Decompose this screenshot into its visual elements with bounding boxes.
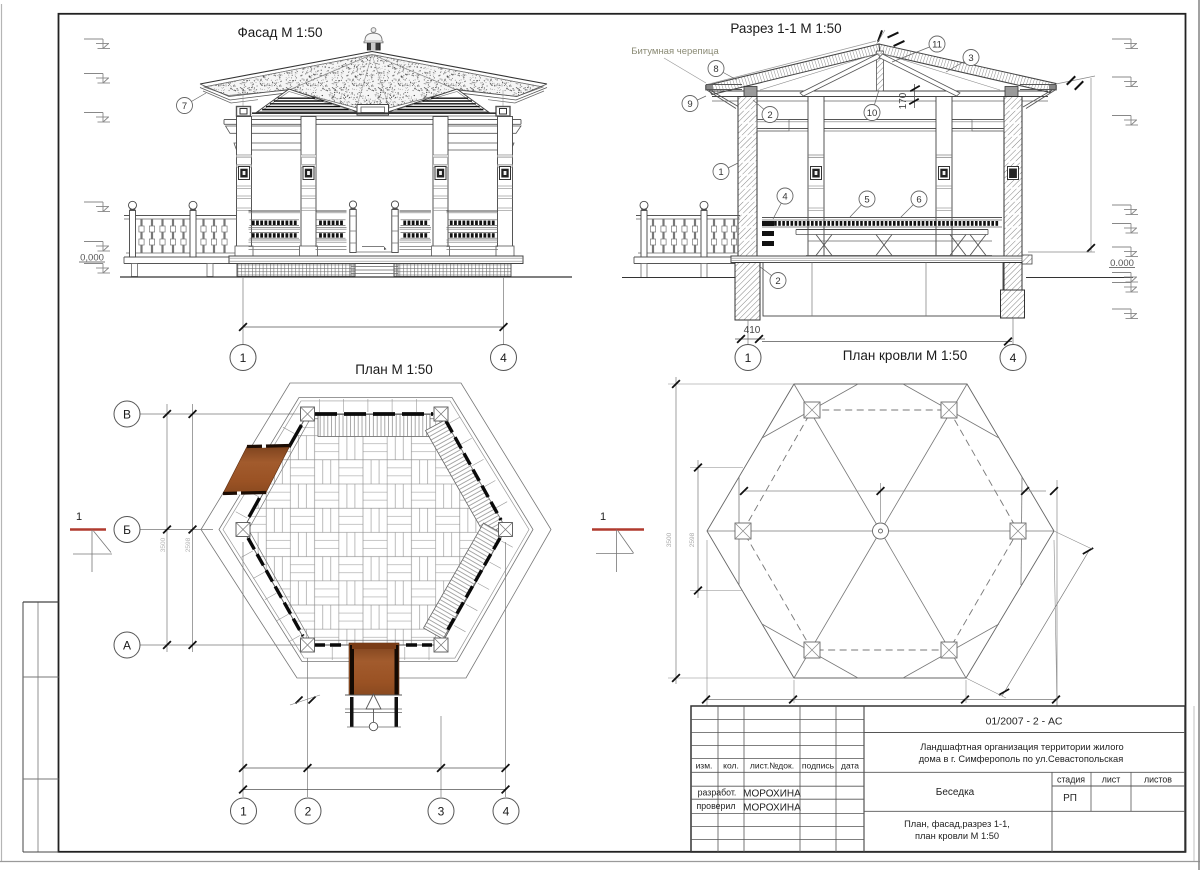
svg-text:3500: 3500 — [666, 532, 673, 547]
svg-text:2: 2 — [767, 110, 772, 121]
svg-text:2598: 2598 — [185, 537, 192, 552]
svg-text:6: 6 — [916, 194, 921, 205]
svg-text:лист.№док.: лист.№док. — [750, 761, 794, 771]
svg-text:10: 10 — [867, 108, 878, 119]
svg-text:4: 4 — [500, 351, 507, 365]
svg-text:РП: РП — [1063, 793, 1077, 804]
svg-text:3500: 3500 — [160, 537, 167, 552]
svg-text:Ландшафтная организация террит: Ландшафтная организация территории жилог… — [920, 742, 1123, 752]
svg-text:План М 1:50: План М 1:50 — [355, 362, 433, 377]
svg-text:2: 2 — [305, 804, 312, 818]
svg-text:листов: листов — [1144, 775, 1172, 785]
svg-text:А: А — [123, 638, 131, 652]
svg-text:Фасад М 1:50: Фасад М 1:50 — [238, 25, 323, 40]
svg-text:9: 9 — [687, 99, 692, 110]
svg-text:7: 7 — [182, 101, 187, 112]
svg-text:изм.: изм. — [696, 761, 713, 771]
svg-text:МОРОХИНА: МОРОХИНА — [743, 789, 801, 800]
svg-text:План, фасад,разрез 1-1,: План, фасад,разрез 1-1, — [904, 819, 1010, 829]
svg-text:1: 1 — [240, 351, 247, 365]
svg-text:1: 1 — [718, 167, 723, 178]
svg-text:Б: Б — [123, 523, 131, 537]
svg-text:1: 1 — [76, 511, 82, 523]
svg-text:1: 1 — [745, 351, 752, 365]
svg-text:4: 4 — [1010, 351, 1017, 365]
svg-text:МОРОХИНА: МОРОХИНА — [743, 803, 801, 814]
svg-text:дата: дата — [841, 761, 859, 771]
svg-text:1: 1 — [600, 511, 606, 523]
svg-text:4: 4 — [503, 804, 510, 818]
svg-text:4: 4 — [782, 191, 787, 202]
svg-text:11: 11 — [932, 39, 942, 50]
svg-text:1: 1 — [240, 804, 247, 818]
svg-text:8: 8 — [713, 64, 718, 75]
svg-text:5: 5 — [864, 194, 869, 205]
svg-text:план кровли М 1:50: план кровли М 1:50 — [915, 831, 999, 841]
svg-text:стадия: стадия — [1057, 775, 1085, 785]
svg-text:410: 410 — [744, 325, 761, 336]
svg-text:Битумная черепица: Битумная черепица — [631, 46, 719, 57]
svg-text:проверил: проверил — [697, 801, 736, 811]
svg-text:План кровли М 1:50: План кровли М 1:50 — [843, 348, 968, 363]
svg-text:3: 3 — [438, 804, 445, 818]
svg-text:кол.: кол. — [723, 761, 739, 771]
svg-text:170: 170 — [898, 92, 909, 109]
svg-text:01/2007 - 2 - АС: 01/2007 - 2 - АС — [986, 716, 1063, 728]
svg-text:2: 2 — [775, 276, 780, 287]
svg-text:дома в г. Симферополь по ул.Се: дома в г. Симферополь по ул.Севастопольс… — [919, 754, 1124, 764]
svg-text:разработ.: разработ. — [698, 788, 737, 798]
svg-text:3: 3 — [968, 53, 973, 64]
svg-text:лист: лист — [1102, 775, 1120, 785]
svg-text:Разрез 1-1 М 1:50: Разрез 1-1 М 1:50 — [730, 21, 841, 36]
svg-text:Беседка: Беседка — [936, 787, 975, 798]
svg-text:2598: 2598 — [689, 532, 696, 547]
svg-text:подпись: подпись — [802, 761, 835, 771]
svg-text:В: В — [123, 407, 131, 421]
